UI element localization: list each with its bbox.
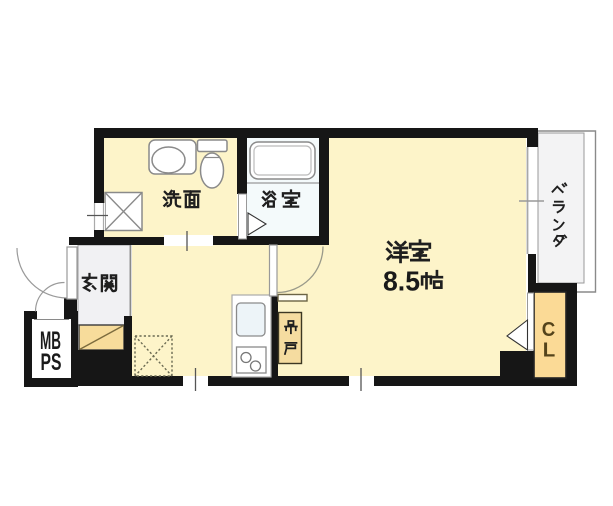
svg-text:PS: PS (41, 349, 62, 376)
svg-text:L: L (543, 340, 556, 362)
svg-text:8.5: 8.5 (383, 266, 420, 297)
svg-text:C: C (542, 319, 556, 341)
